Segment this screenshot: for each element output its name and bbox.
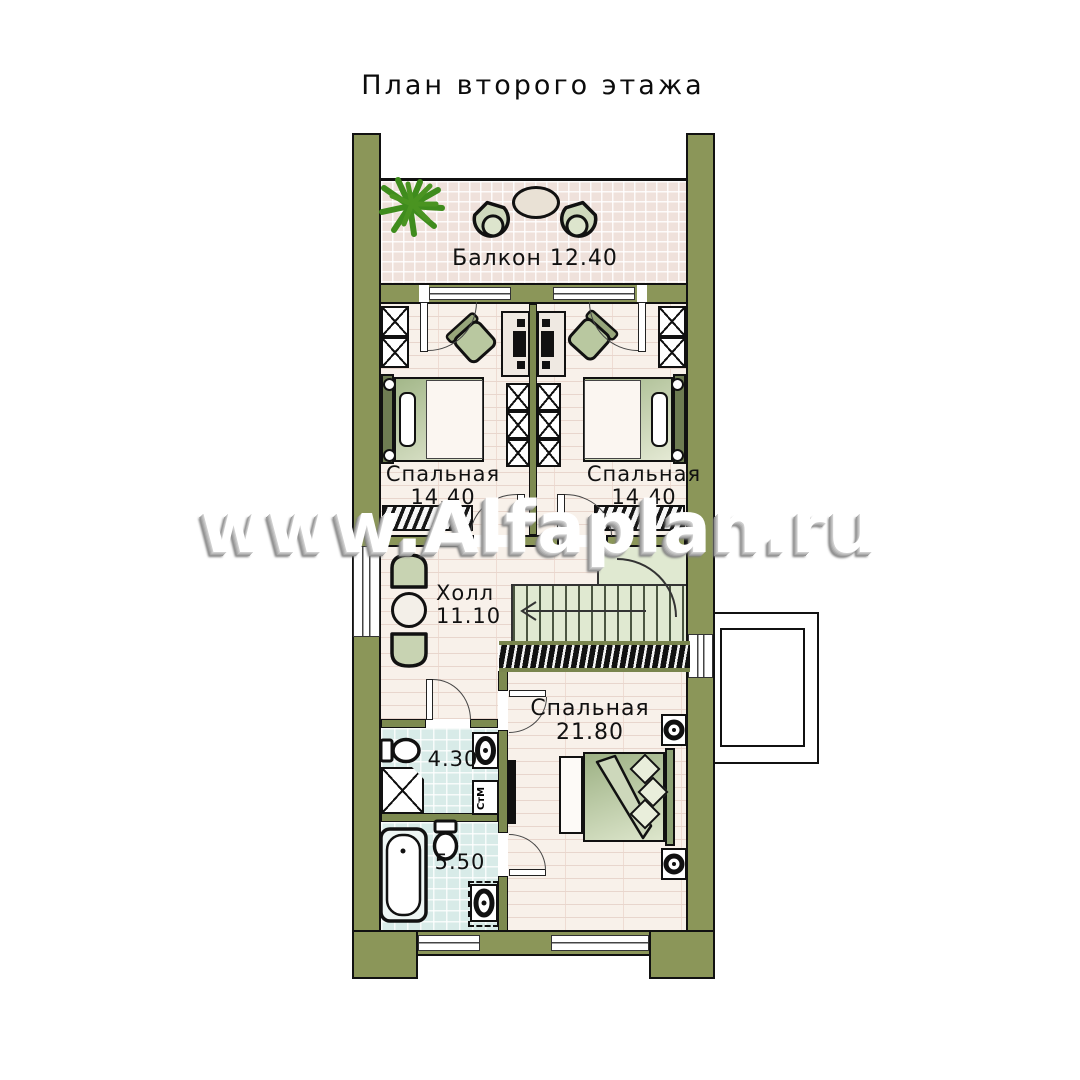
washing-machine-label: СтМ <box>476 787 487 810</box>
wardrobe-cell <box>506 439 530 467</box>
shower-icon <box>381 767 424 814</box>
roof-projection-inner <box>720 628 805 747</box>
bottom-window-left <box>418 935 480 951</box>
master-bed-headboard <box>665 748 675 846</box>
balcony-door-left-leaf <box>420 302 428 352</box>
bed-right-duvet <box>584 380 641 459</box>
balcony-label: Балкон 12.40 <box>440 247 630 271</box>
wc-label: 4.30 <box>423 748 483 771</box>
dresser <box>559 756 583 834</box>
wardrobe-cell <box>506 411 530 439</box>
bed-post <box>671 378 684 391</box>
bed-post <box>383 449 396 462</box>
bottom-right-pillar <box>649 930 715 979</box>
bathtub-icon <box>379 827 428 923</box>
bed-post <box>671 449 684 462</box>
master-bedroom-label: Спальная 21.80 <box>525 697 655 745</box>
desk-speaker <box>517 319 525 327</box>
bed-left-duvet <box>426 380 483 459</box>
stair-railing <box>499 641 690 672</box>
master-wall-mid <box>498 730 508 833</box>
nightstand <box>661 714 687 746</box>
bath-door-leaf <box>509 869 546 876</box>
desk-speaker <box>542 361 550 369</box>
bottom-left-pillar <box>352 930 418 979</box>
wc-top-wall-a <box>381 719 426 728</box>
bed-right-pillow <box>651 392 668 447</box>
desk-monitor <box>513 331 526 357</box>
stair-direction-arrow <box>514 598 654 624</box>
hall-table <box>391 592 427 628</box>
master-wall-upper <box>498 671 508 691</box>
bed-left-pillow <box>399 392 416 447</box>
balcony-window-right <box>553 287 635 300</box>
sink-icon <box>470 884 498 922</box>
balcony-window-left <box>429 287 511 300</box>
wardrobe-cell <box>658 306 686 337</box>
balcony-door-right-gap <box>637 285 647 302</box>
desk-left <box>501 311 530 377</box>
nightstand <box>661 848 687 880</box>
bottom-window-right <box>551 935 649 951</box>
hall-armchair-bottom <box>387 632 431 670</box>
wardrobe-cell <box>537 383 561 411</box>
toilet-icon <box>379 736 421 765</box>
page-title: План второго этажа <box>0 70 1066 101</box>
desk-speaker <box>542 319 550 327</box>
wardrobe-cell <box>506 383 530 411</box>
balcony-door-right-leaf <box>638 302 646 352</box>
wardrobe-cell <box>537 439 561 467</box>
plant-icon <box>378 176 446 240</box>
wc-top-wall-b <box>470 719 498 728</box>
bed-post <box>383 378 396 391</box>
master-wall-lower <box>498 876 508 932</box>
desk-monitor <box>541 331 554 357</box>
bathroom-label: 5.50 <box>430 851 490 874</box>
tv-icon <box>508 760 516 824</box>
wardrobe-cell <box>658 337 686 368</box>
hall-label: Холл 11.10 <box>436 582 506 627</box>
wc-door-leaf <box>426 679 433 720</box>
right-wall-window <box>688 634 713 678</box>
wardrobe-cell <box>537 411 561 439</box>
wardrobe-cell <box>381 337 409 368</box>
balcony-table <box>512 186 560 219</box>
watermark: www.Alfaplan.ru <box>0 486 1080 569</box>
desk-speaker <box>517 361 525 369</box>
balcony-door-left-gap <box>419 285 429 302</box>
washing-machine: СтМ <box>472 780 499 815</box>
desk-right <box>537 311 566 377</box>
wardrobe-cell <box>381 306 409 337</box>
